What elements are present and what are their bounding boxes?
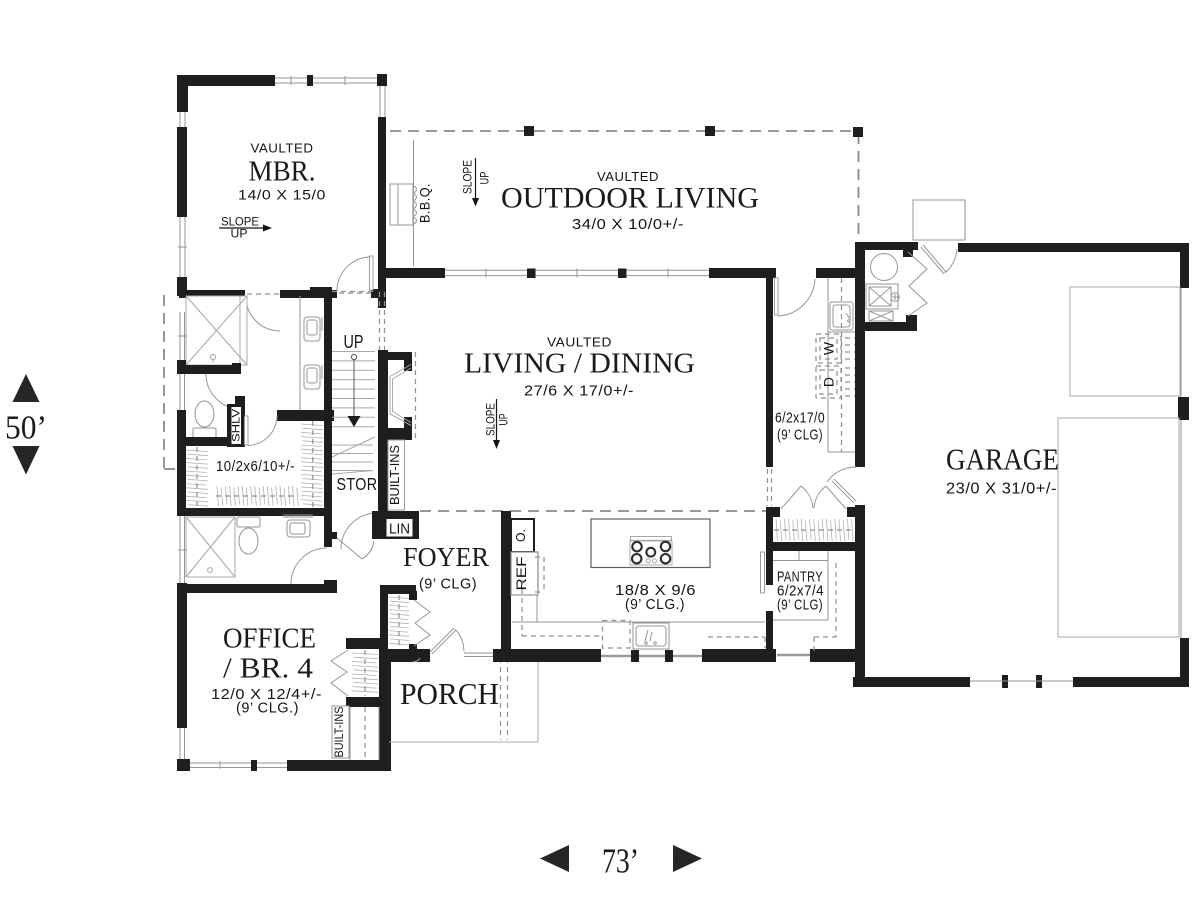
svg-text:PORCH: PORCH	[400, 676, 499, 711]
svg-text:BUILT-INS: BUILT-INS	[332, 707, 346, 758]
svg-text:SHLV: SHLV	[231, 408, 243, 442]
svg-text:BUILT-INS: BUILT-INS	[388, 445, 402, 505]
svg-text:6/2x17/0: 6/2x17/0	[775, 410, 825, 427]
svg-text:D: D	[821, 377, 837, 387]
svg-text:73’: 73’	[602, 842, 639, 881]
svg-text:14/0 X 15/0: 14/0 X 15/0	[238, 187, 326, 203]
svg-text:OUTDOOR LIVING: OUTDOOR LIVING	[501, 182, 759, 215]
svg-text:UP: UP	[480, 171, 492, 184]
svg-text:STOR: STOR	[337, 474, 378, 494]
svg-text:SLOPE: SLOPE	[463, 160, 475, 194]
svg-text:O.: O.	[513, 529, 528, 542]
svg-text:W: W	[821, 341, 837, 355]
svg-text:VAULTED: VAULTED	[251, 141, 314, 156]
svg-text:SLOPE: SLOPE	[221, 217, 259, 229]
svg-text:10/2x6/10+/-: 10/2x6/10+/-	[216, 459, 295, 475]
svg-text:27/6 X 17/0+/-: 27/6 X 17/0+/-	[524, 383, 634, 400]
svg-text:REF: REF	[514, 557, 529, 591]
svg-text:OFFICE: OFFICE	[223, 623, 316, 655]
svg-text:(9’ CLG): (9’ CLG)	[419, 576, 477, 593]
svg-text:UP: UP	[231, 229, 248, 241]
svg-text:34/0 X 10/0+/-: 34/0 X 10/0+/-	[572, 216, 684, 233]
svg-text:(9’ CLG.): (9’ CLG.)	[625, 597, 685, 613]
svg-text:B.B.Q.: B.B.Q.	[417, 183, 433, 223]
svg-text:GARAGE: GARAGE	[946, 442, 1059, 477]
svg-text:50’: 50’	[5, 410, 47, 447]
svg-text:SLOPE: SLOPE	[486, 403, 498, 436]
svg-text:(9’ CLG): (9’ CLG)	[777, 427, 823, 444]
svg-text:(9’ CLG): (9’ CLG)	[777, 597, 823, 614]
svg-text:LIVING / DINING: LIVING / DINING	[464, 348, 695, 380]
svg-text:(9’ CLG.): (9’ CLG.)	[236, 701, 299, 717]
svg-text:23/0 X 31/0+/-: 23/0 X 31/0+/-	[946, 481, 1057, 498]
svg-text:MBR.: MBR.	[249, 157, 316, 188]
svg-text:/ BR. 4: / BR. 4	[223, 653, 314, 685]
svg-text:UP: UP	[344, 331, 364, 352]
svg-text:UP: UP	[499, 413, 511, 425]
svg-text:LIN: LIN	[389, 521, 410, 538]
svg-text:FOYER: FOYER	[403, 541, 490, 572]
